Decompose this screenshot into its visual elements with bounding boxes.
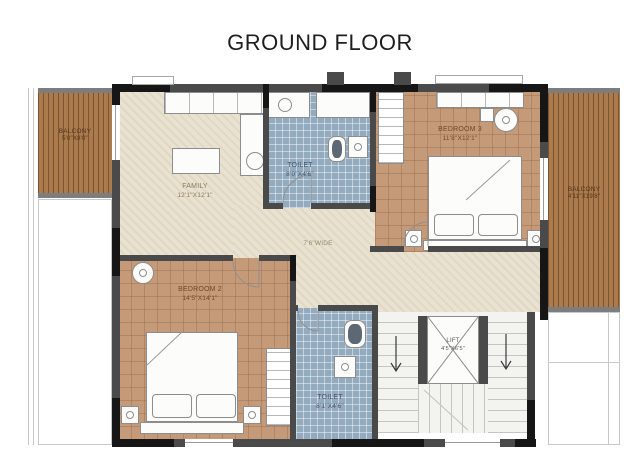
toilet-bottom-label: TOILET 8'1"X4'6" [298, 394, 362, 411]
floor-plan-canvas: GROUND FLOOR [0, 0, 640, 453]
toilet-top-basin [348, 136, 368, 158]
wall-accent [515, 439, 536, 447]
wall-accent [290, 255, 296, 281]
wc-seat [332, 140, 342, 158]
family-table [172, 148, 220, 174]
staircase-lower-flight [418, 384, 488, 433]
family-stool [246, 152, 264, 170]
wall-segment [370, 246, 404, 252]
wall-accent [370, 84, 376, 112]
wall-segment [318, 305, 378, 311]
balcony-right-label: BALCONY 4'11"X19'8" [550, 186, 618, 202]
bedroom2-pillow [152, 394, 192, 418]
wall-accent [370, 186, 376, 212]
bedroom3-pillow [434, 214, 474, 236]
bedroom3-dresser [436, 92, 524, 108]
bedroom2-nightstand [243, 406, 261, 424]
wall-segment [290, 255, 296, 440]
window-sill [435, 75, 523, 84]
column [394, 72, 411, 85]
wall-accent [540, 84, 548, 142]
open-terrace-left [38, 199, 112, 445]
wall-segment [372, 305, 378, 439]
balcony-left-label: BALCONY 5'0"X8'0" [40, 128, 110, 144]
basin-drain-icon [502, 116, 510, 124]
toilet-top-sink [278, 98, 292, 112]
wall-accent [527, 400, 535, 439]
bedroom2-basin [132, 262, 154, 284]
bedroom2-wardrobe [266, 348, 292, 426]
wall-segment [311, 203, 376, 209]
lift-shaft-wall [418, 316, 427, 384]
bedroom3-pillow [478, 214, 518, 236]
bedroom2-nightstand [121, 406, 139, 424]
window-sill [132, 76, 174, 85]
terrace-line [608, 312, 609, 445]
wall-segment [112, 255, 233, 261]
toilet-top-wc [328, 136, 346, 162]
corridor-width-label: 7'6"WIDE [286, 240, 350, 248]
window [185, 439, 233, 447]
wall-accent [540, 248, 548, 320]
site-boundary-line [33, 88, 34, 445]
bedroom3-nightstand [405, 230, 422, 247]
wall-accent [112, 228, 120, 276]
lift-shaft-wall [479, 316, 488, 384]
lamp-icon [532, 235, 540, 243]
balcony-right-door-window [540, 158, 548, 220]
balcony-left-door-window [112, 105, 120, 160]
open-terrace-right [548, 312, 620, 445]
basin-drain-icon [354, 143, 362, 151]
bedroom3-label: BEDROOM 3 11'8"X12'1" [405, 126, 515, 143]
page-title: GROUND FLOOR [0, 30, 640, 56]
family-counter-top [164, 92, 266, 114]
family-room-label: FAMILY 12'1"X12'1" [151, 183, 239, 200]
wall-segment [263, 203, 283, 209]
bedroom2-headboard [140, 422, 244, 434]
wall-segment [548, 88, 620, 93]
wc-seat [348, 324, 362, 344]
wall-segment [38, 193, 112, 198]
wall-segment [38, 88, 112, 93]
lamp-icon [410, 235, 418, 243]
wall-accent [112, 84, 170, 92]
toilet-top-label: TOILET 8'0"X4'6" [268, 162, 332, 179]
site-boundary-line [28, 88, 29, 445]
bedroom2-pillow [196, 394, 236, 418]
bedroom2-label: BEDROOM 2 14'5"X14'1" [148, 286, 252, 303]
lift-label: LIFT 4'5"X6'5" [427, 338, 479, 352]
wall-accent [263, 84, 269, 108]
basin-drain-icon [341, 363, 349, 371]
column [327, 72, 344, 85]
bedroom3-basin-counter [480, 108, 494, 122]
toilet-bottom-basin [334, 356, 356, 378]
toilet-top-shower [316, 92, 370, 118]
wall-segment [290, 305, 298, 311]
bedroom3-wardrobe [378, 92, 404, 164]
window [445, 439, 500, 447]
wall-segment [428, 246, 548, 252]
lamp-icon [248, 411, 256, 419]
wall-accent [332, 439, 424, 447]
lamp-icon [126, 411, 134, 419]
wall-accent [112, 439, 174, 447]
toilet-bottom-wc [344, 320, 366, 348]
terrace-line [548, 362, 620, 363]
basin-drain-icon [139, 269, 147, 277]
